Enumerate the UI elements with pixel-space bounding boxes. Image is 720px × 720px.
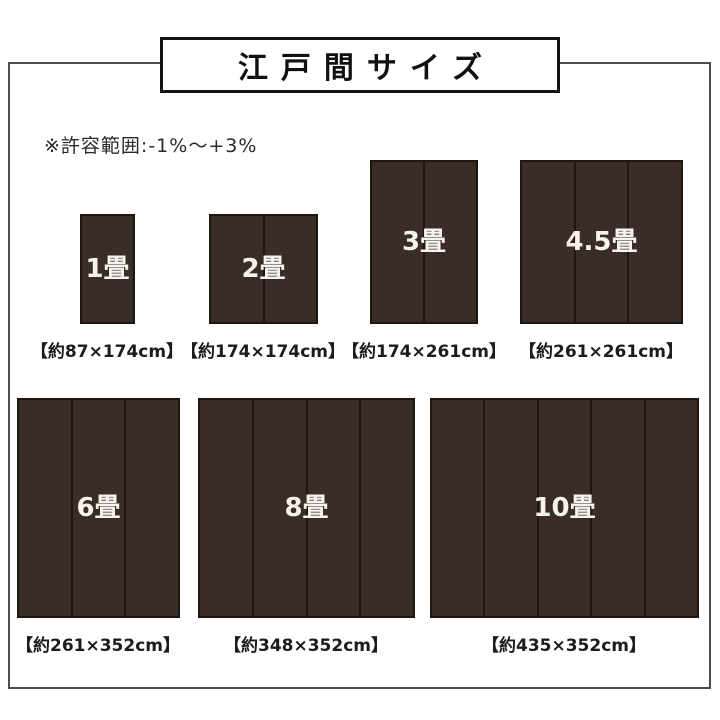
mat-size-label: 2畳: [241, 256, 285, 282]
mat-size-label: 6畳: [76, 495, 120, 521]
tolerance-note: ※許容範囲:-1%〜+3%: [44, 131, 257, 158]
size-chart-page: 江戸間サイズ ※許容範囲:-1%〜+3% 1畳【約87×174cm】2畳【約17…: [0, 0, 720, 720]
mat-dimensions-label: 【約348×352cm】: [224, 631, 388, 656]
mat-panel: [200, 400, 252, 616]
mat-dimensions-label: 【約261×352cm】: [16, 631, 180, 656]
mat-size-label: 8畳: [284, 495, 328, 521]
mat-size-label: 4.5畳: [565, 229, 637, 255]
mat-size-label: 10畳: [533, 495, 595, 521]
mat-panel: [124, 400, 178, 616]
tatami-mat-diagram: 1畳: [80, 214, 135, 324]
mat-size-label: 1畳: [85, 256, 129, 282]
mat-dimensions-label: 【約174×261cm】: [342, 337, 506, 362]
tatami-mat-diagram: 6畳: [17, 398, 180, 618]
mat-panel: [644, 400, 697, 616]
tatami-mat-diagram: 8畳: [198, 398, 415, 618]
mat-size-label: 3畳: [402, 229, 446, 255]
mat-dimensions-label: 【約261×261cm】: [519, 337, 683, 362]
mat-panel: [590, 400, 643, 616]
title-banner: 江戸間サイズ: [160, 37, 560, 93]
mat-panel: [359, 400, 413, 616]
mat-panel: [483, 400, 536, 616]
tatami-mat-diagram: 4.5畳: [520, 160, 683, 324]
tatami-mat-diagram: 10畳: [430, 398, 699, 618]
mat-panel: [19, 400, 71, 616]
mat-dimensions-label: 【約87×174cm】: [31, 337, 183, 362]
mat-dimensions-label: 【約435×352cm】: [482, 631, 646, 656]
mat-dimensions-label: 【約174×174cm】: [181, 337, 345, 362]
mat-panel: [432, 400, 483, 616]
page-title: 江戸間サイズ: [238, 43, 495, 87]
tatami-mat-diagram: 3畳: [370, 160, 478, 324]
tatami-mat-diagram: 2畳: [209, 214, 318, 324]
